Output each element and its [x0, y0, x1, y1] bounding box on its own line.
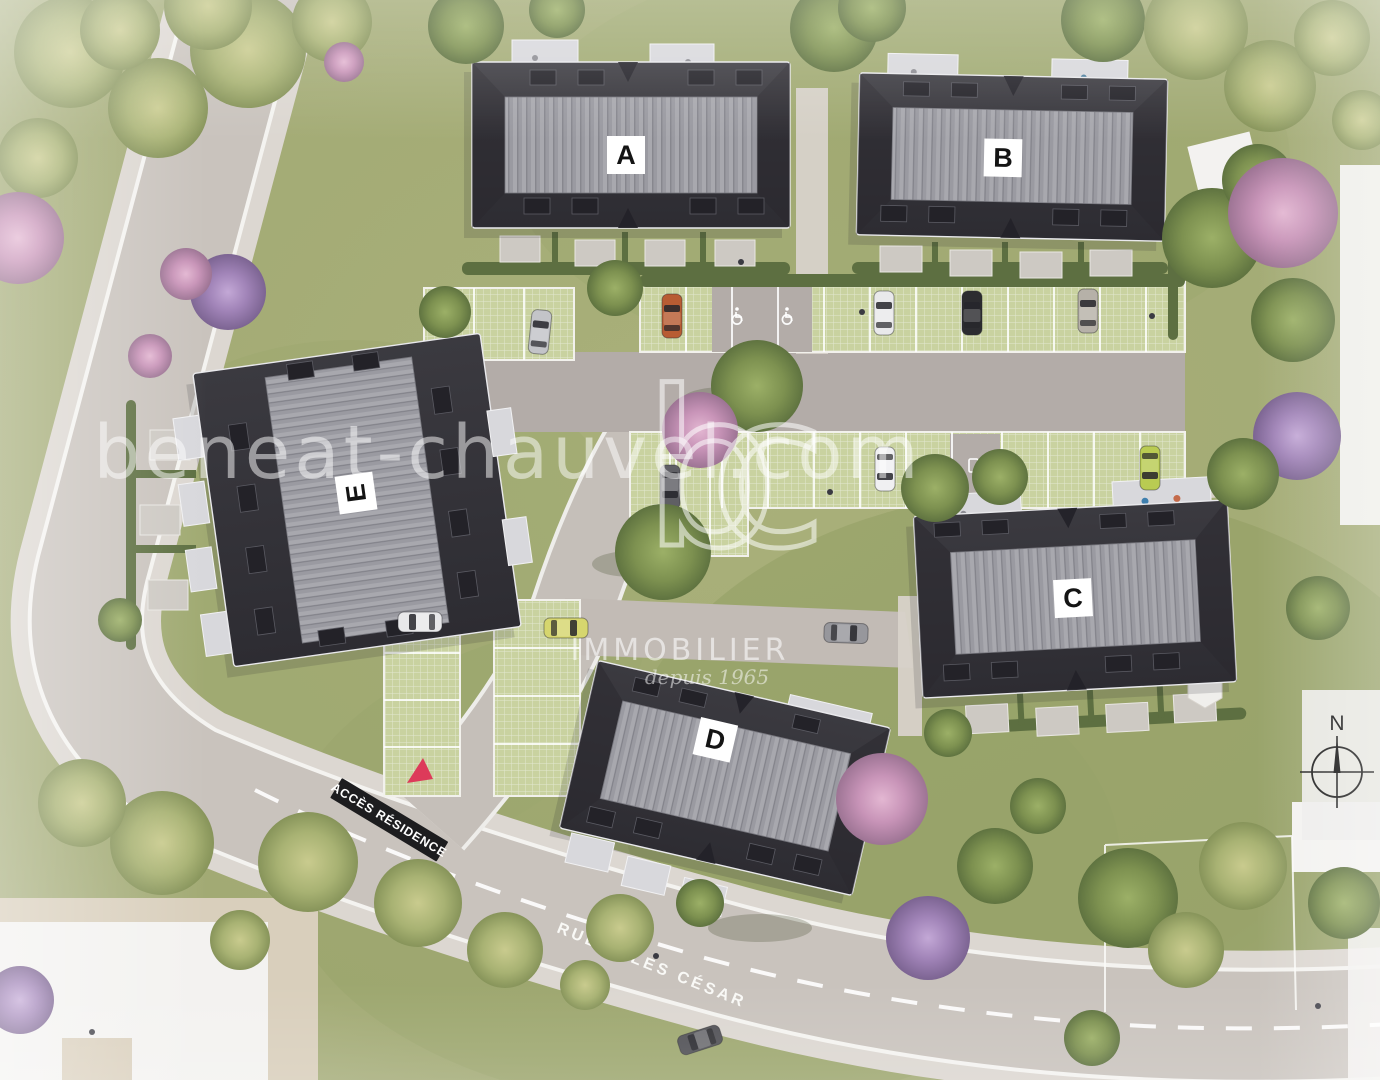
site-plan-svg: A B C	[0, 0, 1380, 1080]
building-letter: C	[1062, 583, 1083, 614]
car	[962, 291, 982, 335]
building-label-c[interactable]: C	[1053, 578, 1093, 618]
watermark-brand: IMMOBILIER	[570, 633, 789, 668]
watermark-domain: beneat-chauvel.com	[93, 410, 922, 496]
building-a: A	[464, 40, 790, 238]
building-letter: B	[993, 143, 1013, 173]
watermark-tagline: depuis 1965	[645, 665, 769, 689]
building-e: E	[161, 330, 542, 681]
compass-north-label: N	[1329, 712, 1344, 735]
building-label-a[interactable]: A	[607, 136, 645, 174]
car	[1140, 446, 1160, 490]
car	[824, 622, 869, 644]
building-b: B	[848, 53, 1168, 252]
car	[528, 309, 552, 355]
car	[1078, 289, 1098, 333]
building-label-b[interactable]: B	[984, 138, 1023, 177]
site-plan-render: A B C	[0, 0, 1380, 1080]
car	[662, 294, 682, 338]
car	[398, 612, 442, 632]
car	[874, 291, 894, 335]
building-letter: A	[616, 140, 636, 170]
